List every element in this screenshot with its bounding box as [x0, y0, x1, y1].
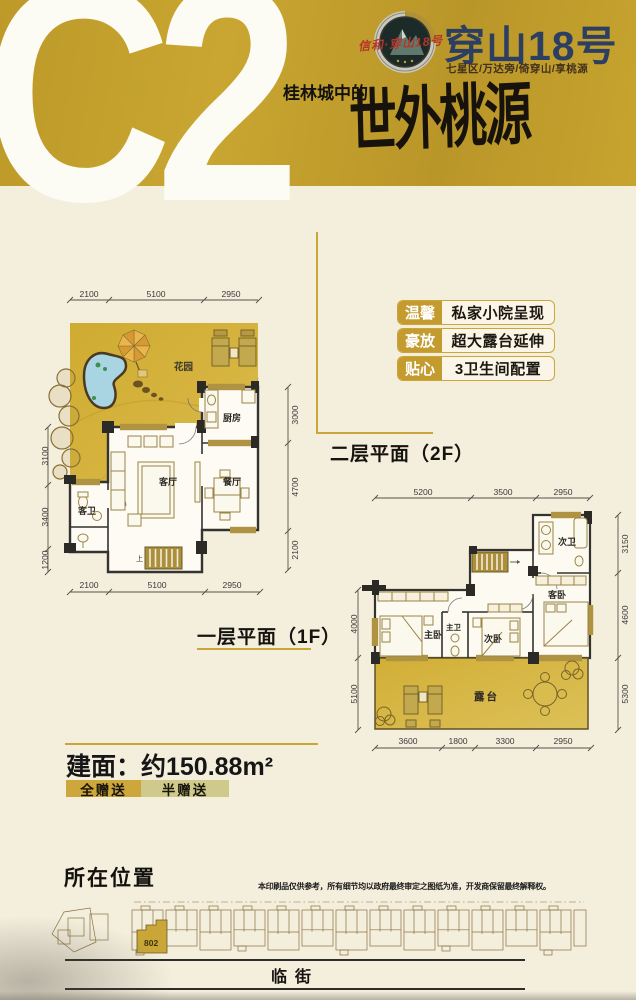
dim-label: 3150 [620, 534, 630, 553]
room-label-master-bedroom: 主卧 [424, 629, 442, 640]
dim-label: 2100 [79, 289, 98, 299]
feature-badge: 贴心 3卫生间配置 [397, 356, 555, 381]
legend-half-gift: 半赠送 [141, 780, 229, 797]
photo-edge-shade [0, 991, 636, 1000]
dim-label: 5100 [147, 580, 166, 590]
site-plan: 802 [44, 894, 589, 964]
dim-label: 2950 [221, 289, 240, 299]
legend-full-gift: 全赠送 [66, 780, 141, 797]
badge-tag: 温馨 [398, 301, 442, 324]
unit-code: C2 [0, 0, 283, 248]
dim-label: 2100 [79, 580, 98, 590]
gift-legend: 全赠送 半赠送 [66, 780, 229, 797]
badge-text: 私家小院呈现 [442, 301, 554, 324]
room-label-second-bedroom: 次卧 [484, 633, 502, 644]
floor-plan-1f: 花园 [38, 286, 310, 608]
room-label-second-bath: 次卫 [558, 536, 576, 547]
poster-canvas: C2 信和·穿山18号 穿山18号 七星区/万达旁/倚穿山/享桃源 桂林城中的 … [0, 0, 636, 1000]
dim-label: 3300 [495, 736, 514, 746]
room-label-living: 客厅 [158, 476, 177, 487]
feature-badge: 温馨 私家小院呈现 [397, 300, 555, 325]
room-label-guest-bedroom: 客卧 [547, 589, 566, 600]
area-rule [65, 743, 318, 745]
dim-label: 5100 [349, 684, 359, 703]
dim-label: 4000 [349, 614, 359, 633]
stairs-up-label: 上 [136, 554, 143, 563]
plan-1f-title: 一层平面（1F） [197, 622, 341, 649]
room-label-dining: 餐厅 [222, 476, 241, 487]
dim-label: 3600 [398, 736, 417, 746]
dim-label: 5300 [620, 684, 630, 703]
room-label-kitchen: 厨房 [223, 412, 241, 423]
feature-badge: 豪放 超大露台延伸 [397, 328, 555, 353]
room-label-terrace: 露台 [474, 690, 499, 703]
street-line-bottom [65, 988, 525, 990]
location-title: 所在位置 [64, 862, 156, 892]
dim-label: 3400 [40, 507, 50, 526]
feature-badges: 温馨 私家小院呈现 豪放 超大露台延伸 贴心 3卫生间配置 [397, 300, 555, 381]
badge-tag: 豪放 [398, 329, 442, 352]
plan-2f-title: 二层平面（2F） [330, 439, 474, 466]
dim-label: 2100 [290, 540, 300, 559]
house-2f: 次卫 客卧 主卧 主卫 次卧 露台 [362, 511, 593, 729]
section-divider-horizontal [316, 432, 433, 434]
room-label-guest-bath: 客卫 [77, 505, 96, 516]
disclaimer-text: 本印刷品仅供参考，所有细节均以政府最终审定之图纸为准，开发商保留最终解释权。 [258, 881, 551, 892]
street-label: 临街 [65, 963, 525, 987]
street-line-top [65, 959, 525, 961]
dim-label: 5100 [146, 289, 165, 299]
dim-label: 1800 [448, 736, 467, 746]
dim-label: 3000 [290, 405, 300, 424]
dim-label: 2950 [553, 736, 572, 746]
unit-number-label: 802 [144, 938, 158, 948]
dim-label: 3100 [40, 446, 50, 465]
building-outlines [52, 906, 586, 955]
slogan-calligraphy: 世外桃源 [348, 59, 530, 167]
badge-text: 3卫生间配置 [442, 357, 554, 380]
dim-label: 3500 [493, 487, 512, 497]
dim-label: 4700 [290, 477, 300, 496]
badge-text: 超大露台延伸 [442, 329, 554, 352]
dim-label: 4600 [620, 605, 630, 624]
highlighted-unit: 802 [137, 920, 167, 953]
dim-label: 1200 [40, 550, 50, 569]
plan-1f-title-underline [197, 648, 311, 650]
dim-label: 2950 [222, 580, 241, 590]
dim-label: 5200 [413, 487, 432, 497]
floor-plan-2f: 次卫 客卧 主卧 主卫 次卧 露台 5200 3500 2950 3600 18… [336, 470, 636, 770]
badge-tag: 贴心 [398, 357, 442, 380]
dim-label: 2950 [553, 487, 572, 497]
room-label-master-bath: 主卫 [446, 622, 461, 632]
section-divider-vertical [316, 232, 318, 433]
room-label-garden: 花园 [174, 361, 193, 373]
